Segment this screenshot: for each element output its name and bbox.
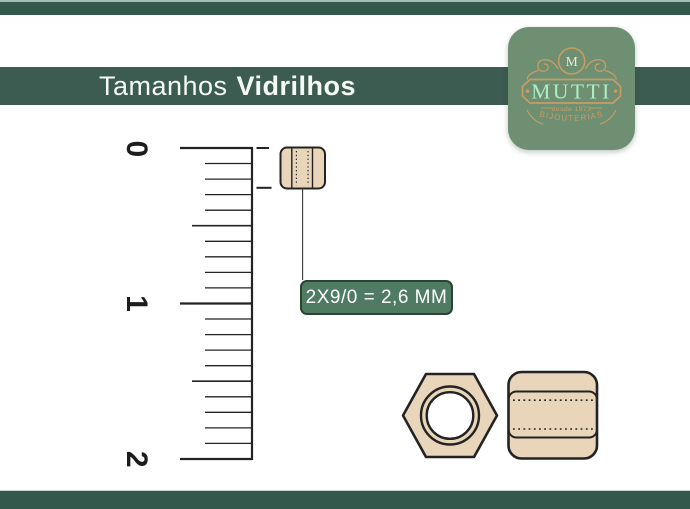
flourish-curl-right <box>585 60 605 72</box>
page-title: Tamanhos Vidrilhos <box>0 67 455 105</box>
brand-name: MUTTI <box>531 80 612 104</box>
ruler-number-2: 2 <box>120 451 153 468</box>
ruler-number-0: 0 <box>120 140 153 157</box>
bead-side-body <box>509 372 598 459</box>
bead-front-view <box>403 374 497 457</box>
measured-bead-body <box>281 148 326 189</box>
measured-bead <box>257 148 326 281</box>
flourish-tail-right <box>605 71 616 80</box>
flourish-tail-left <box>527 71 538 80</box>
brand-logo-art: M MUTTI desde 1973 BIJOUTERIAS <box>508 27 635 150</box>
page-title-bold: Vidrilhos <box>237 71 357 102</box>
monogram-letter: M <box>566 54 578 69</box>
brand-since: desde 1973 <box>552 106 592 113</box>
infographic-canvas: Tamanhos Vidrilhos M MUTTI desde 1973 BI… <box>0 0 690 509</box>
badge-dot-left <box>526 90 529 93</box>
bead-side-view <box>509 372 598 459</box>
flourish-curl-left <box>538 60 558 72</box>
bead-hole <box>427 392 474 439</box>
ruler: 0 1 2 <box>120 140 253 467</box>
brand-logo: M MUTTI desde 1973 BIJOUTERIAS <box>508 27 635 150</box>
page-title-light: Tamanhos <box>99 71 228 102</box>
badge-dot-right <box>614 90 617 93</box>
size-label-text: 2X9/0 = 2,6 MM <box>306 287 448 309</box>
ruler-number-1: 1 <box>120 295 153 312</box>
size-label: 2X9/0 = 2,6 MM <box>300 280 453 315</box>
